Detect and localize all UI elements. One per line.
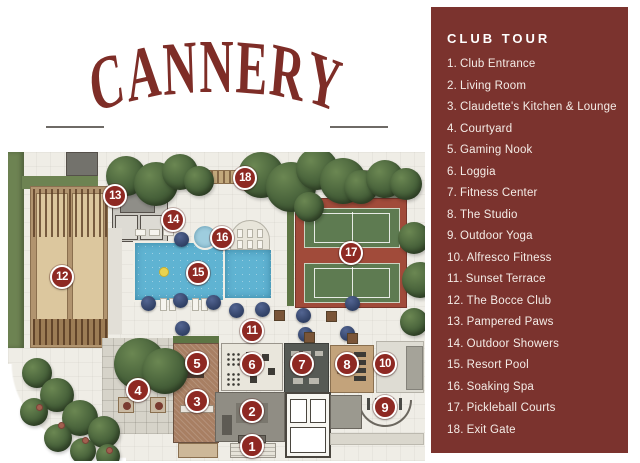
legend-item-number: 14. [447, 338, 464, 350]
logo-cannery: CANNERY [87, 28, 346, 114]
legend-item-label: Courtyard [460, 123, 512, 135]
legend-item-14[interactable]: 14.Outdoor Showers [447, 339, 618, 351]
map-marker-17[interactable]: 17 [339, 241, 363, 265]
logo: CANNERY [8, 2, 425, 152]
legend-item-8[interactable]: 8.The Studio [447, 210, 618, 222]
legend-item-number: 18. [447, 424, 464, 436]
legend-item-label: Outdoor Showers [467, 338, 560, 350]
legend-item-13[interactable]: 13.Pampered Paws [447, 317, 618, 329]
logo-letter: E [235, 28, 271, 111]
map-marker-18[interactable]: 18 [233, 166, 257, 190]
legend-item-18[interactable]: 18.Exit Gate [447, 425, 618, 437]
legend-item-number: 17. [447, 402, 464, 414]
legend-item-15[interactable]: 15.Resort Pool [447, 360, 618, 372]
map-marker-10[interactable]: 10 [373, 352, 397, 376]
logo-letter: N [200, 28, 237, 108]
legend-item-1[interactable]: 1.Club Entrance [447, 59, 618, 71]
legend-item-number: 4. [447, 123, 457, 135]
legend-item-4[interactable]: 4.Courtyard [447, 124, 618, 136]
legend-item-label: Fitness Center [460, 187, 538, 199]
map-markers: 123456789101112131415161718 [8, 152, 425, 461]
legend-item-12[interactable]: 12.The Bocce Club [447, 296, 618, 308]
legend-item-number: 10. [447, 252, 464, 264]
logo-letter: A [123, 30, 166, 117]
legend-item-label: Club Entrance [460, 58, 535, 70]
legend-item-label: Exit Gate [467, 424, 516, 436]
legend-item-5[interactable]: 5.Gaming Nook [447, 145, 618, 157]
legend-item-number: 1. [447, 58, 457, 70]
club-tour-title: CLUB TOUR [447, 31, 618, 46]
map-marker-16[interactable]: 16 [210, 226, 234, 250]
legend-item-label: Alfresco Fitness [467, 252, 552, 264]
legend-item-label: The Studio [460, 209, 518, 221]
legend-item-3[interactable]: 3.Claudette's Kitchen & Lounge [447, 102, 618, 114]
map-marker-4[interactable]: 4 [126, 378, 150, 402]
map-marker-2[interactable]: 2 [240, 399, 264, 423]
legend-item-2[interactable]: 2.Living Room [447, 81, 618, 93]
legend-item-label: Outdoor Yoga [460, 230, 533, 242]
legend-item-label: Pampered Paws [467, 316, 554, 328]
legend-list: 1.Club Entrance 2.Living Room 3.Claudett… [447, 59, 618, 436]
logo-letter: N [162, 28, 201, 111]
logo-rule-right [330, 126, 388, 128]
legend-item-16[interactable]: 16.Soaking Spa [447, 382, 618, 394]
page: { "logo": { "the": "The", "cannery": "CA… [0, 0, 640, 463]
legend-item-label: Gaming Nook [460, 144, 533, 156]
site-map: 123456789101112131415161718 [8, 152, 425, 461]
legend-item-number: 2. [447, 80, 457, 92]
legend-item-label: The Bocce Club [467, 295, 552, 307]
legend-item-number: 8. [447, 209, 457, 221]
legend-item-label: Claudette's Kitchen & Lounge [460, 101, 617, 113]
legend-item-11[interactable]: 11.Sunset Terrace [447, 274, 618, 286]
map-marker-13[interactable]: 13 [103, 184, 127, 208]
legend-item-label: Loggia [460, 166, 496, 178]
legend-item-label: Pickleball Courts [467, 402, 556, 414]
legend-item-17[interactable]: 17.Pickleball Courts [447, 403, 618, 415]
legend-item-number: 9. [447, 230, 457, 242]
map-marker-8[interactable]: 8 [335, 352, 359, 376]
map-marker-1[interactable]: 1 [240, 434, 264, 458]
map-marker-14[interactable]: 14 [161, 208, 185, 232]
legend-item-10[interactable]: 10.Alfresco Fitness [447, 253, 618, 265]
legend-item-9[interactable]: 9.Outdoor Yoga [447, 231, 618, 243]
map-marker-11[interactable]: 11 [240, 319, 264, 343]
legend-item-number: 3. [447, 101, 457, 113]
legend-item-number: 12. [447, 295, 464, 307]
legend-item-label: Soaking Spa [467, 381, 534, 393]
legend-item-6[interactable]: 6.Loggia [447, 167, 618, 179]
legend-item-label: Sunset Terrace [466, 273, 546, 285]
map-marker-15[interactable]: 15 [186, 261, 210, 285]
map-marker-9[interactable]: 9 [373, 395, 397, 419]
legend-item-label: Resort Pool [467, 359, 529, 371]
logo-rule-left [46, 126, 104, 128]
legend-item-label: Living Room [460, 80, 526, 92]
map-marker-6[interactable]: 6 [240, 352, 264, 376]
legend-item-number: 11. [447, 273, 463, 285]
legend-item-number: 7. [447, 187, 457, 199]
legend-item-number: 15. [447, 359, 464, 371]
club-tour-panel: CLUB TOUR 1.Club Entrance 2.Living Room … [431, 7, 628, 453]
map-marker-5[interactable]: 5 [185, 351, 209, 375]
map-marker-3[interactable]: 3 [185, 389, 209, 413]
map-marker-12[interactable]: 12 [50, 265, 74, 289]
legend-item-number: 6. [447, 166, 457, 178]
legend-item-7[interactable]: 7.Fitness Center [447, 188, 618, 200]
legend-item-number: 13. [447, 316, 464, 328]
map-marker-7[interactable]: 7 [290, 352, 314, 376]
legend-item-number: 5. [447, 144, 457, 156]
legend-item-number: 16. [447, 381, 464, 393]
